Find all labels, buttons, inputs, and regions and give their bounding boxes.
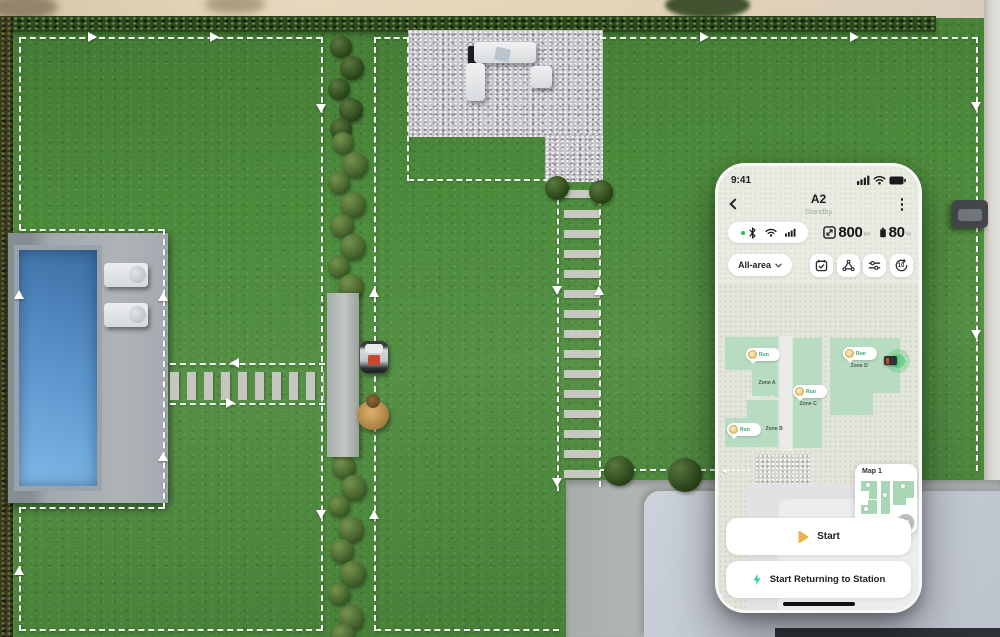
round-bush [604, 456, 634, 486]
sliders-icon [868, 259, 881, 272]
area-icon [823, 226, 836, 239]
zone-c-badge[interactable]: Run [793, 385, 827, 398]
bluetooth-icon [748, 227, 757, 239]
zone-b-badge-label: Run [740, 427, 750, 432]
mini-zone [881, 481, 890, 514]
zone-c-badge-label: Run [806, 389, 816, 394]
boundary-line [163, 229, 165, 509]
bluetooth-status-dot [741, 231, 745, 235]
dog-head [366, 394, 380, 408]
round-bush [668, 458, 702, 492]
mower-body [365, 344, 383, 353]
return-to-station-button[interactable]: Start Returning to Station [726, 561, 911, 598]
crosswalk-stones [170, 372, 324, 400]
cypress-tree [330, 36, 352, 58]
lounger-pillow [129, 266, 146, 283]
start-button[interactable]: Start [726, 518, 911, 555]
boundary-arrow [14, 566, 24, 575]
map-robot-marker[interactable] [884, 356, 897, 365]
map-crosswalk [748, 396, 774, 397]
wifi-icon [765, 228, 777, 237]
mode-selected-label: All-area [738, 260, 771, 270]
mini-pin [864, 507, 868, 511]
robot-mower [360, 341, 388, 373]
boundary-arrow [226, 398, 235, 408]
zone-d-badge[interactable]: Run [843, 347, 877, 360]
boundary-line [374, 37, 376, 631]
boundary-line [170, 363, 325, 365]
boundary-line [321, 37, 323, 631]
zone-d-shape[interactable] [830, 393, 873, 415]
gravel-patio-extension [545, 135, 603, 182]
boundary-arrow [88, 32, 97, 42]
schedule-button[interactable] [810, 254, 833, 277]
bush [328, 495, 350, 517]
zone-b-label: Zone B [766, 426, 783, 431]
boundary-arrow [369, 288, 379, 297]
pool [14, 245, 102, 491]
mower-panel [368, 355, 380, 365]
bush [340, 561, 366, 587]
zone-d-badge-label: Run [856, 351, 866, 356]
mini-pin [883, 493, 887, 497]
boundary-arrow [552, 286, 562, 295]
mini-pin [901, 484, 905, 488]
boundary-line [19, 37, 21, 230]
zone-triangle-icon [842, 259, 855, 272]
lounger-pillow [129, 306, 146, 323]
clock: 9:41 [731, 175, 751, 186]
return-button-label: Start Returning to Station [770, 574, 886, 585]
zone-d-label: Zone D [851, 363, 868, 368]
cypress-tree [340, 56, 364, 80]
boundary-line [20, 629, 322, 631]
lounger [104, 263, 148, 287]
start-button-label: Start [817, 531, 840, 542]
map-boundary-arrow [722, 468, 727, 474]
zone-a-label: Zone A [759, 380, 776, 385]
boundary-arrow [369, 510, 379, 519]
boundary-line [599, 179, 601, 487]
boundary-line [20, 37, 322, 39]
app-screen: 9:41 A2 Standby 8 [718, 166, 919, 610]
zone-b-badge[interactable]: Run [727, 423, 761, 436]
boundary-line [557, 179, 559, 491]
bush [330, 539, 354, 563]
status-bar: 9:41 [718, 172, 919, 188]
boundary-arrow [700, 32, 709, 42]
outdoor-armchair [531, 66, 552, 88]
area-value: 800 [838, 224, 862, 241]
stats-group: 800 m² 80 % [823, 221, 911, 243]
play-icon [797, 530, 809, 544]
kebab-menu-icon[interactable] [901, 203, 904, 206]
rotate-10-button[interactable]: 10 [890, 254, 913, 277]
zone-b-shape[interactable] [747, 400, 778, 418]
boundary-arrow [971, 330, 981, 339]
charging-dock [952, 200, 988, 228]
dock-pad [958, 209, 982, 221]
battery-stat-icon [879, 226, 887, 239]
walkway [327, 293, 359, 457]
boundary-arrow [210, 32, 219, 42]
mini-pin [866, 483, 870, 487]
boundary-arrow [850, 32, 859, 42]
home-indicator[interactable] [783, 602, 855, 606]
dropdown-caret-icon [775, 263, 782, 268]
lounger [104, 303, 148, 327]
boundary-line [20, 507, 164, 509]
boundary-line [170, 403, 325, 405]
boundary-line [600, 37, 978, 39]
area-unit: m² [864, 232, 871, 238]
boundary-line [20, 229, 164, 231]
round-bush [545, 176, 569, 200]
boundary-arrow [971, 102, 981, 111]
boundary-arrow [552, 478, 562, 487]
pool-deck [8, 233, 168, 503]
bush [332, 132, 354, 154]
battery-icon [889, 176, 906, 185]
dog [357, 394, 391, 430]
bush [340, 234, 366, 260]
garden-scene: 9:41 A2 Standby 8 [0, 0, 1000, 637]
battery-value: 80 [889, 224, 905, 241]
rotate-10-label: 10 [890, 263, 913, 269]
battery-unit: % [906, 232, 911, 238]
boundary-arrow [316, 510, 326, 519]
bush [328, 583, 350, 605]
boundary-line [375, 37, 409, 39]
lightning-icon [752, 573, 762, 586]
nav-bar: A2 Standby [718, 191, 919, 221]
map-path [780, 336, 792, 451]
bush [328, 172, 350, 194]
calendar-check-icon [815, 259, 828, 272]
sofa-cushion [494, 47, 511, 63]
step-shadow [775, 628, 1000, 637]
zone-a-badge[interactable]: Run [746, 348, 780, 361]
boundary-arrow [230, 358, 239, 368]
cypress-tree [328, 78, 350, 100]
page-title: A2 [718, 192, 919, 206]
mode-selector[interactable]: All-area [728, 254, 792, 276]
mini-zone [893, 498, 906, 505]
stepping-stones [564, 190, 600, 482]
boundary-arrow [316, 104, 326, 113]
connectivity-pill[interactable] [728, 222, 808, 243]
side-walkway [984, 0, 1000, 485]
marker-panel [886, 358, 889, 364]
settings-sliders-button[interactable] [863, 254, 886, 277]
boundary-line [375, 629, 559, 631]
zone-mapping-button[interactable] [837, 254, 860, 277]
wifi-icon [873, 175, 886, 185]
mini-zone [869, 491, 877, 499]
boundary-line [407, 37, 409, 181]
boundary-arrow [158, 452, 168, 461]
phone: 9:41 A2 Standby 8 [715, 163, 922, 613]
status-icons [857, 175, 906, 185]
signal-bars-icon [857, 175, 870, 185]
zone-c-label: Zone C [800, 401, 817, 406]
device-status: Standby [718, 207, 919, 216]
zone-a-badge-label: Run [759, 352, 769, 357]
map-card-label: Map 1 [862, 468, 882, 475]
boundary-arrow [14, 290, 24, 299]
boundary-arrow [158, 292, 168, 301]
outdoor-sofa [466, 63, 485, 101]
boundary-arrow [594, 286, 604, 295]
boundary-line [408, 179, 559, 181]
signal-bars-icon [785, 228, 796, 237]
round-bush [589, 180, 613, 204]
